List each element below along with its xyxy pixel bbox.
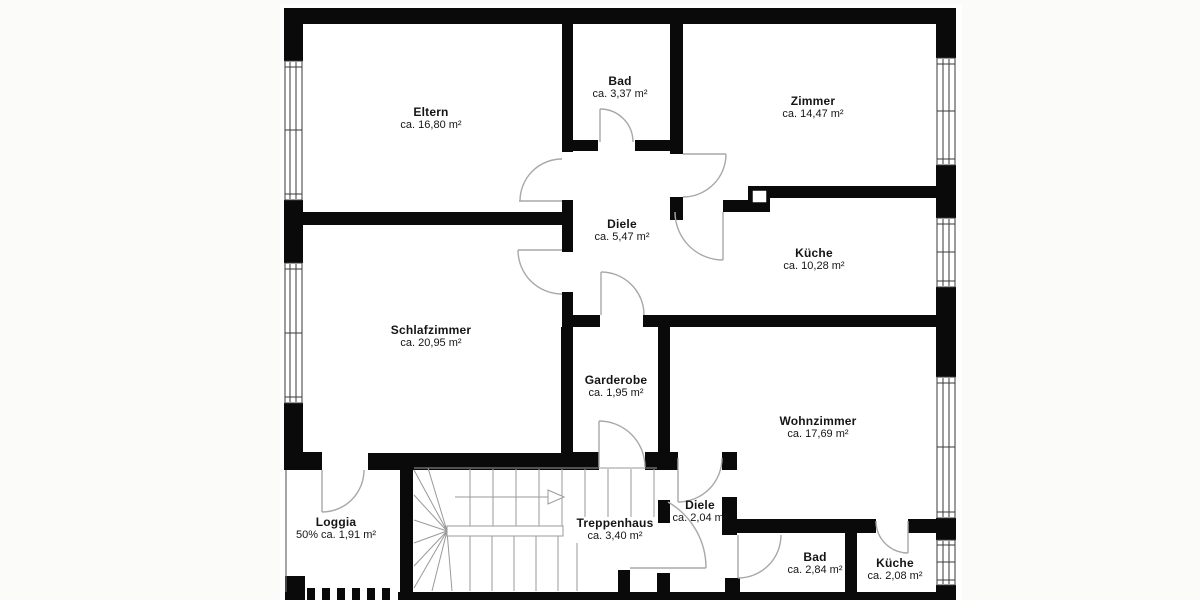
- window-eltern: [285, 61, 302, 200]
- shaft-box: [752, 190, 767, 203]
- window-kueche-og: [937, 218, 955, 287]
- window-schlafzimmer: [285, 263, 302, 403]
- room-label-wohnzimmer: Wohnzimmer ca. 17,69 m²: [779, 415, 856, 441]
- room-label-diele-unten: Diele ca. 2,04 m²: [672, 499, 727, 525]
- room-label-loggia: Loggia 50% ca. 1,91 m²: [296, 516, 376, 542]
- room-label-kueche-unten: Küche ca. 2,08 m²: [867, 557, 922, 583]
- room-label-treppenhaus: Treppenhaus ca. 3,40 m²: [574, 517, 657, 543]
- window-wohnzimmer: [937, 377, 955, 518]
- window-zimmer: [937, 58, 955, 165]
- room-label-bad-og: Bad ca. 3,37 m²: [592, 75, 647, 101]
- window-kueche-unten: [937, 540, 955, 585]
- room-label-garderobe: Garderobe ca. 1,95 m²: [585, 374, 648, 400]
- room-label-zimmer: Zimmer ca. 14,47 m²: [782, 95, 843, 121]
- room-label-schlafzimmer: Schlafzimmer ca. 20,95 m²: [391, 324, 471, 350]
- room-label-eltern: Eltern ca. 16,80 m²: [400, 106, 461, 132]
- floor-plan-page: Eltern ca. 16,80 m² Bad ca. 3,37 m² Zimm…: [0, 0, 1200, 600]
- room-label-kueche-og: Küche ca. 10,28 m²: [783, 247, 844, 273]
- room-label-bad-unten: Bad ca. 2,84 m²: [787, 551, 842, 577]
- room-label-diele-og: Diele ca. 5,47 m²: [594, 218, 649, 244]
